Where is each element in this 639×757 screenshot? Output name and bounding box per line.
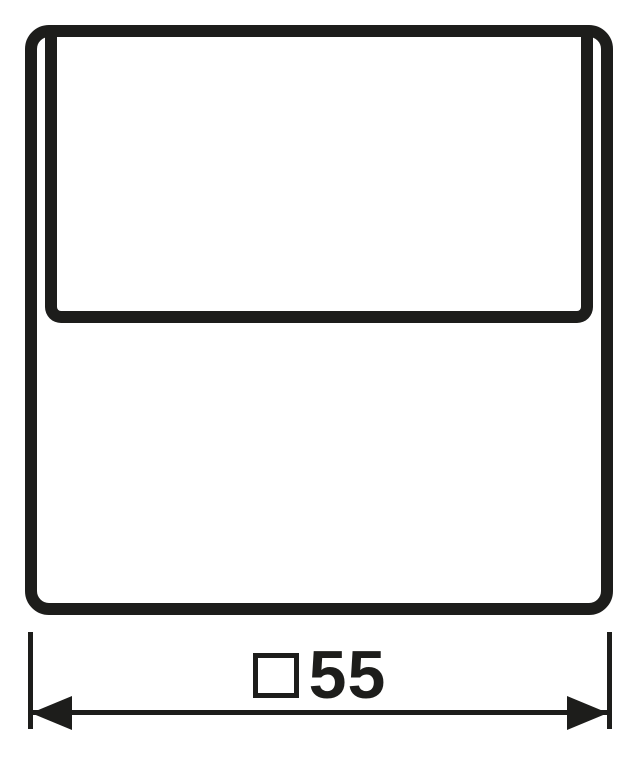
dimension-label: 55 [0, 640, 639, 710]
dimension-value: 55 [309, 640, 387, 710]
flip-lid-outline [45, 25, 593, 323]
square-symbol-icon [253, 653, 299, 698]
technical-drawing-canvas: 55 [0, 0, 639, 757]
